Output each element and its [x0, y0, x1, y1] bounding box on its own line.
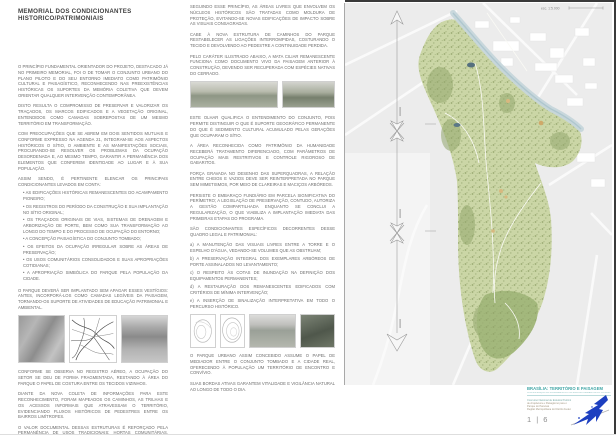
- conditionant-item: OS USOS COMUNITÁRIOS CONSOLIDADOS E SUAS…: [23, 257, 168, 269]
- paragraph: SUAS BORDAS ATIVAS GARANTEM VITALIDADE E…: [190, 381, 335, 393]
- aerial-photo-figure: [18, 315, 65, 363]
- middle-column: SEGUINDO ESSE PRINCÍPIO, AS ÁREAS LIVRES…: [190, 4, 335, 397]
- info-line: Região Metropolitana do Distrito Federal: [527, 408, 571, 411]
- panorama-photo: [249, 314, 296, 348]
- paragraph: DIANTE DA NOVA COLETA DE INFORMAÇÕES PAR…: [18, 391, 168, 420]
- scale-text: esc. 1:5.000: [541, 7, 560, 11]
- path-network-drawing: [69, 315, 116, 363]
- paragraph: O PARQUE DEVERÁ SER IMPLANTADO SEM APAGA…: [18, 288, 168, 311]
- competition-info: Concurso Nacional de Estudos Preliminare…: [527, 399, 571, 412]
- conditionant-item: A CONCEPÇÃO PAISAGÍSTICA DO CONJUNTO TOM…: [23, 236, 168, 242]
- paragraph: PERSISTE O EMBARAÇO FUNDIÁRIO EM PARCELA…: [190, 193, 335, 222]
- paragraph: PELO CARÁTER ILUSTRADO ABAIXO, A MATA CI…: [190, 54, 335, 77]
- paragraph: A ÁREA RECONHECIDA COMO PATRIMÔNIO DA HU…: [190, 143, 335, 166]
- conditionant-item: OS EFEITOS DA OCUPAÇÃO IRREGULAR SOBRE A…: [23, 244, 168, 256]
- figure-row-sketches: [190, 314, 335, 348]
- landscape-photo-2: [282, 81, 335, 108]
- mid-paragraphs-bottom: O PARQUE URBANO ASSIM CONCEBIDO ASSUME O…: [190, 353, 335, 392]
- paragraph: COM PREOCUPAÇÕES QUE SE ABREM EM DOIS SE…: [18, 131, 168, 172]
- conditionant-item: OS TRAÇADOS ORIGINAIS DE VIAS, SISTEMAS …: [23, 217, 168, 235]
- landscape-photo-1: [190, 81, 278, 108]
- mid-paragraphs-top: SEGUINDO ESSE PRINCÍPIO, AS ÁREAS LIVRES…: [190, 4, 335, 77]
- figure-row-maps: [18, 315, 168, 363]
- conditionant-item: A APROPRIAÇÃO SIMBÓLICA DO PARQUE PELA P…: [23, 270, 168, 282]
- paragraph: FORÇA GRAVADA NO DESENHO DAS SUPERQUADRA…: [190, 171, 335, 188]
- paragraph: CABE À NOVA ESTRUTURA DE CAMINHOS DO PAR…: [190, 32, 335, 49]
- lettered-item: d) A RESTAURAÇÃO DOS REMANESCENTES EDIFI…: [190, 284, 335, 296]
- left-column: MEMORIAL DOS CONDICIONANTES HISTORICO/PA…: [18, 8, 168, 435]
- conditionant-item: OS REGISTROS DO PERÍODO DA CONSTRUÇÃO E …: [23, 204, 168, 216]
- lettered-item: e) A INSERÇÃO DE SINALIZAÇÃO INTERPRETAT…: [190, 298, 335, 310]
- bird-logo: [570, 394, 610, 429]
- lettered-item: b) A PRESERVAÇÃO INTEGRAL DOS EXEMPLARES…: [190, 256, 335, 268]
- trees-photo: [300, 314, 335, 348]
- paragraph: SEGUINDO ESSE PRINCÍPIO, AS ÁREAS LIVRES…: [190, 4, 335, 27]
- plan-sketch-1: [190, 314, 216, 348]
- bird-logo-graphic: [570, 394, 610, 429]
- project-title: BRASÍLIA: TERRITÓRIO E PAISAGEM: [527, 386, 611, 391]
- conditionant-item: AS EDIFICAÇÕES HISTÓRICAS REMANESCENTES …: [23, 190, 168, 202]
- paragraph: DISTO RESULTA O COMPROMISSO DE PRESERVAR…: [18, 103, 168, 126]
- list-intro: ASSIM SENDO, É PERTINENTE ELENCAR OS PRI…: [18, 176, 168, 188]
- pond-north: [467, 63, 475, 68]
- paragraph: O PARQUE URBANO ASSIM CONCEBIDO ASSUME O…: [190, 353, 335, 376]
- lettered-item: c) O RESPEITO ÀS COTAS DE INUNDAÇÃO NA D…: [190, 270, 335, 282]
- trail-lines-graphic: [70, 316, 115, 362]
- left-paragraphs-top: O PRINCÍPIO FUNDAMENTAL ORIENTADOR DO PR…: [18, 64, 168, 172]
- presentation-board: MEMORIAL DOS CONDICIONANTES HISTORICO/PA…: [0, 0, 616, 435]
- mid-paragraphs-mid: ESTE OLHAR QUALIFICA O ENTENDIMENTO DO C…: [190, 115, 335, 237]
- paragraph: CONFORME SE OBSERVA NO REGISTRO AÉREO, A…: [18, 369, 168, 386]
- sketch-rings-graphic: [221, 315, 245, 347]
- lettered-item: a) A MANUTENÇÃO DAS VISUAIS LIVRES ENTRE…: [190, 242, 335, 254]
- lettered-conditionants: a) A MANUTENÇÃO DAS VISUAIS LIVRES ENTRE…: [190, 242, 335, 310]
- plan-sketch-2: [220, 314, 246, 348]
- site-plan-map: esc. 1:5.000: [345, 3, 612, 385]
- pond-south: [454, 123, 461, 127]
- sketch-circles-graphic: [191, 315, 215, 347]
- paragraph: O PRINCÍPIO FUNDAMENTAL ORIENTADOR DO PR…: [18, 64, 168, 99]
- left-paragraphs-mid: CONFORME SE OBSERVA NO REGISTRO AÉREO, A…: [18, 369, 168, 435]
- light-terrain: [345, 153, 430, 385]
- paragraph: ESTE OLHAR QUALIFICA O ENTENDIMENTO DO C…: [190, 115, 335, 138]
- site-plan-graphic: esc. 1:5.000: [345, 3, 612, 385]
- aerial-panorama-figure: [121, 315, 168, 363]
- top-edge-line: [345, 0, 616, 2]
- page-title: MEMORIAL DOS CONDICIONANTES HISTORICO/PA…: [18, 8, 168, 22]
- conditionants-list: AS EDIFICAÇÕES HISTÓRICAS REMANESCENTES …: [18, 190, 168, 282]
- paragraph: SÃO CONDICIONANTES ESPECÍFICOS DECORRENT…: [190, 226, 335, 238]
- figure-row-landscape-photos: [190, 81, 335, 108]
